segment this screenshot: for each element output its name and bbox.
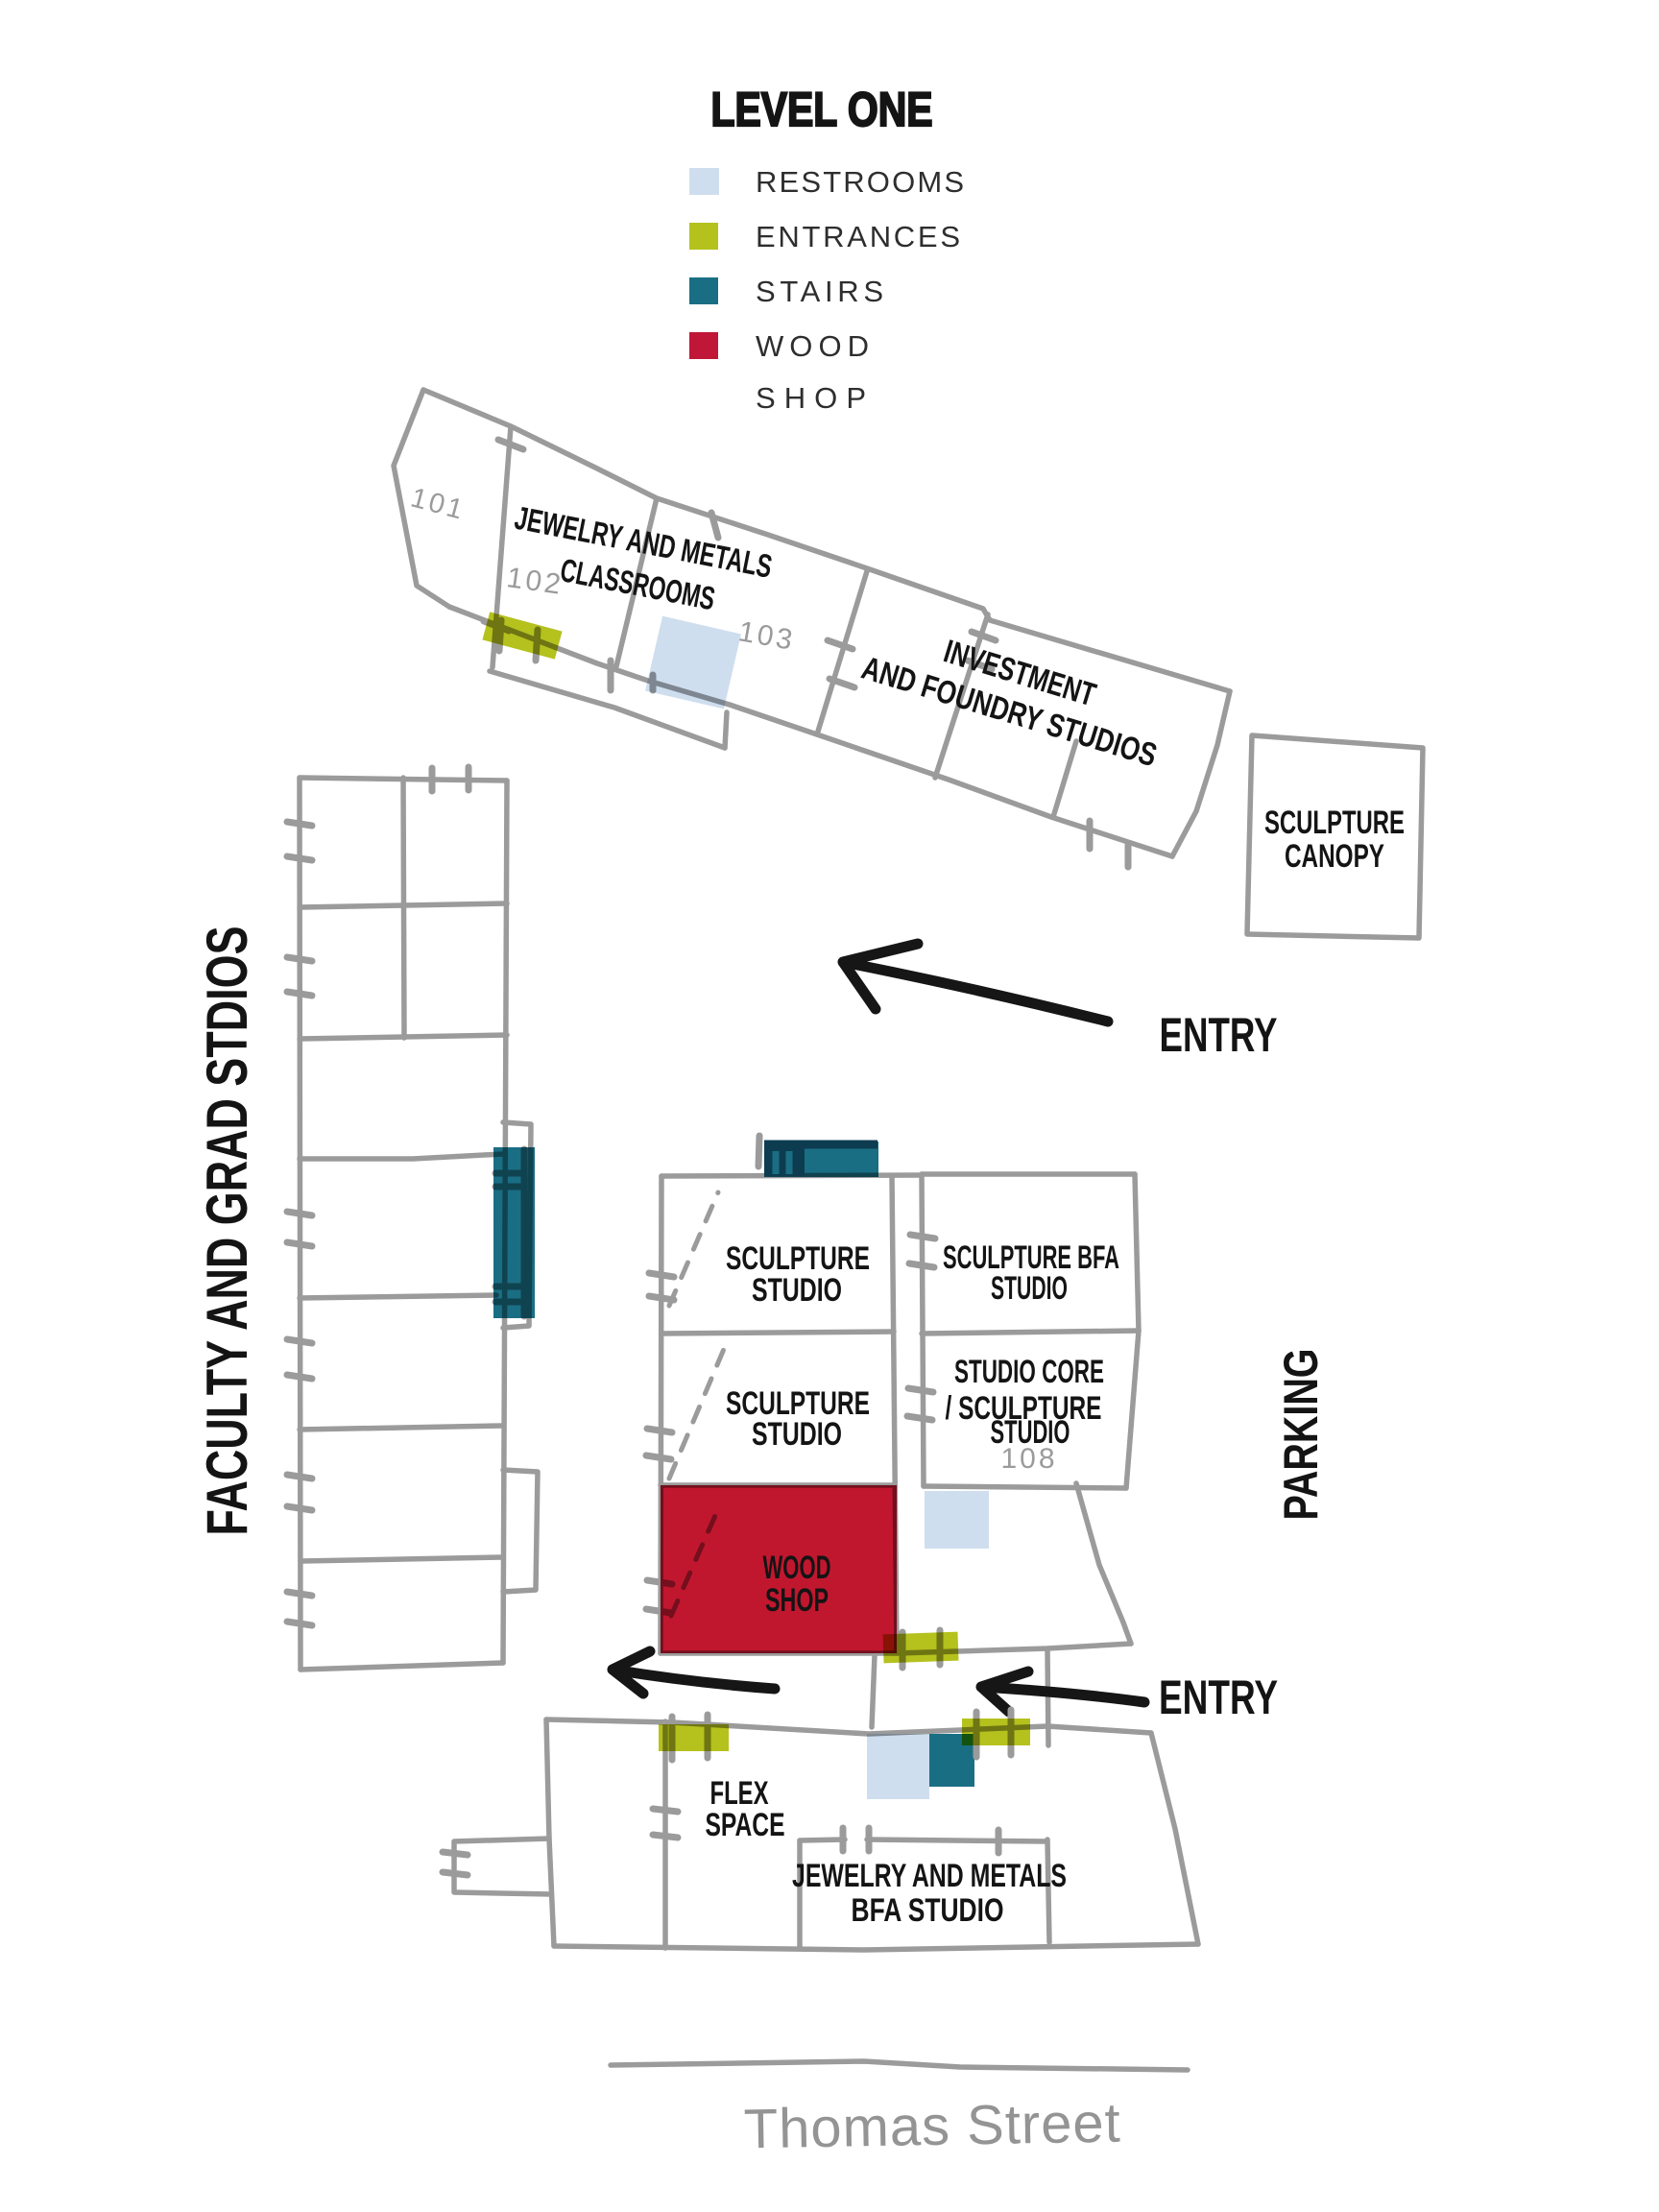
- svg-text:CANOPY: CANOPY: [1285, 838, 1384, 875]
- svg-text:WOOD: WOOD: [756, 329, 869, 363]
- svg-text:ENTRY: ENTRY: [1160, 1008, 1278, 1062]
- svg-text:JEWELRY AND METALS: JEWELRY AND METALS: [792, 1858, 1067, 1894]
- svg-text:BFA STUDIO: BFA STUDIO: [852, 1892, 1004, 1929]
- svg-text:SCULPTURE: SCULPTURE: [1264, 805, 1405, 841]
- svg-text:ENTRANCES: ENTRANCES: [756, 220, 960, 253]
- svg-text:108: 108: [1000, 1443, 1057, 1475]
- svg-text:STUDIO: STUDIO: [991, 1270, 1068, 1307]
- svg-text:FACULTY AND GRAD STDIOS: FACULTY AND GRAD STDIOS: [195, 926, 259, 1536]
- svg-text:STAIRS: STAIRS: [756, 275, 883, 308]
- svg-text:LEVEL ONE: LEVEL ONE: [711, 83, 933, 136]
- svg-text:ENTRY: ENTRY: [1159, 1671, 1278, 1724]
- svg-text:STUDIO: STUDIO: [752, 1272, 842, 1309]
- svg-text:SHOP: SHOP: [765, 1582, 829, 1619]
- svg-text:Thomas Street: Thomas Street: [743, 2092, 1120, 2161]
- svg-text:SPACE: SPACE: [706, 1807, 785, 1843]
- svg-text:STUDIO CORE: STUDIO CORE: [954, 1354, 1104, 1390]
- svg-text:PARKING: PARKING: [1274, 1349, 1328, 1521]
- svg-text:STUDIO: STUDIO: [752, 1416, 842, 1453]
- svg-text:WOOD: WOOD: [763, 1550, 831, 1586]
- svg-text:RESTROOMS: RESTROOMS: [756, 165, 964, 199]
